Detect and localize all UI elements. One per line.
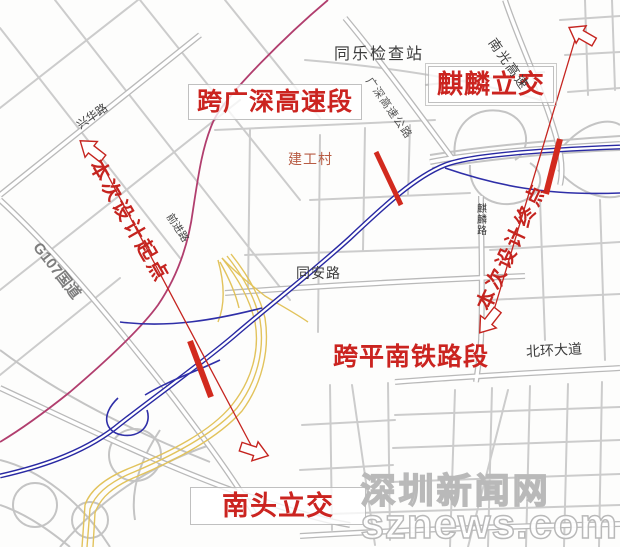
- watermark-site-url: sznews.com: [361, 507, 618, 541]
- nantou-interchange-label: 南头立交: [190, 487, 366, 525]
- sznews-watermark: 深圳新闻网 sznews.com: [361, 478, 618, 541]
- planning-map: 同乐检查站 跨广深高速段 麒麟立交 南光高速 广深高速公路 兴华路 本次设计起点…: [0, 0, 620, 547]
- qilin-road-label: 麒麟路: [474, 203, 485, 236]
- jiangong-village-label: 建工村: [288, 152, 333, 167]
- guangshen-section-label: 跨广深高速段: [188, 84, 362, 120]
- nantou-direction-arrow: [238, 437, 272, 465]
- tongan-road-label: 同安路: [296, 266, 341, 281]
- north-direction-arrow: [564, 19, 599, 51]
- pingnan-railway-section-label: 跨平南铁路段: [333, 344, 489, 370]
- beihuan-avenue-label: 北环大道: [526, 342, 583, 360]
- qilin-interchange-label: 麒麟立交: [428, 66, 554, 103]
- tongle-checkpoint-label: 同乐检查站: [334, 47, 424, 64]
